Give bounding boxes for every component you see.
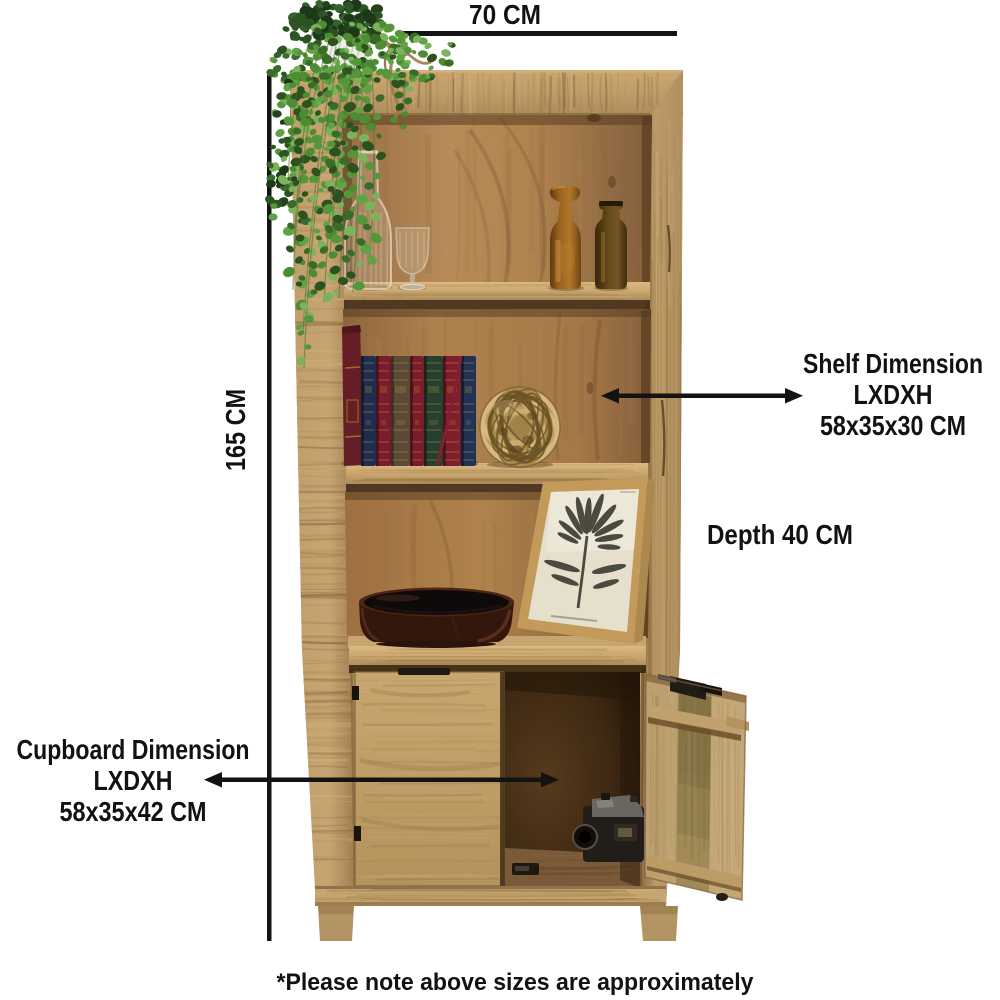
svg-text:*Please note above sizes are a: *Please note above sizes are approximate… (277, 969, 755, 996)
svg-text:Shelf Dimension: Shelf Dimension (803, 348, 983, 379)
svg-text:165 CM: 165 CM (220, 389, 251, 471)
svg-text:70 CM: 70 CM (469, 0, 541, 30)
svg-text:LXDXH: LXDXH (94, 765, 173, 796)
svg-text:58x35x42 CM: 58x35x42 CM (60, 796, 207, 827)
svg-text:Depth 40 CM: Depth 40 CM (707, 519, 853, 550)
svg-text:LXDXH: LXDXH (854, 379, 933, 410)
svg-text:Cupboard Dimension: Cupboard Dimension (17, 734, 250, 765)
svg-text:58x35x30 CM: 58x35x30 CM (820, 410, 966, 441)
